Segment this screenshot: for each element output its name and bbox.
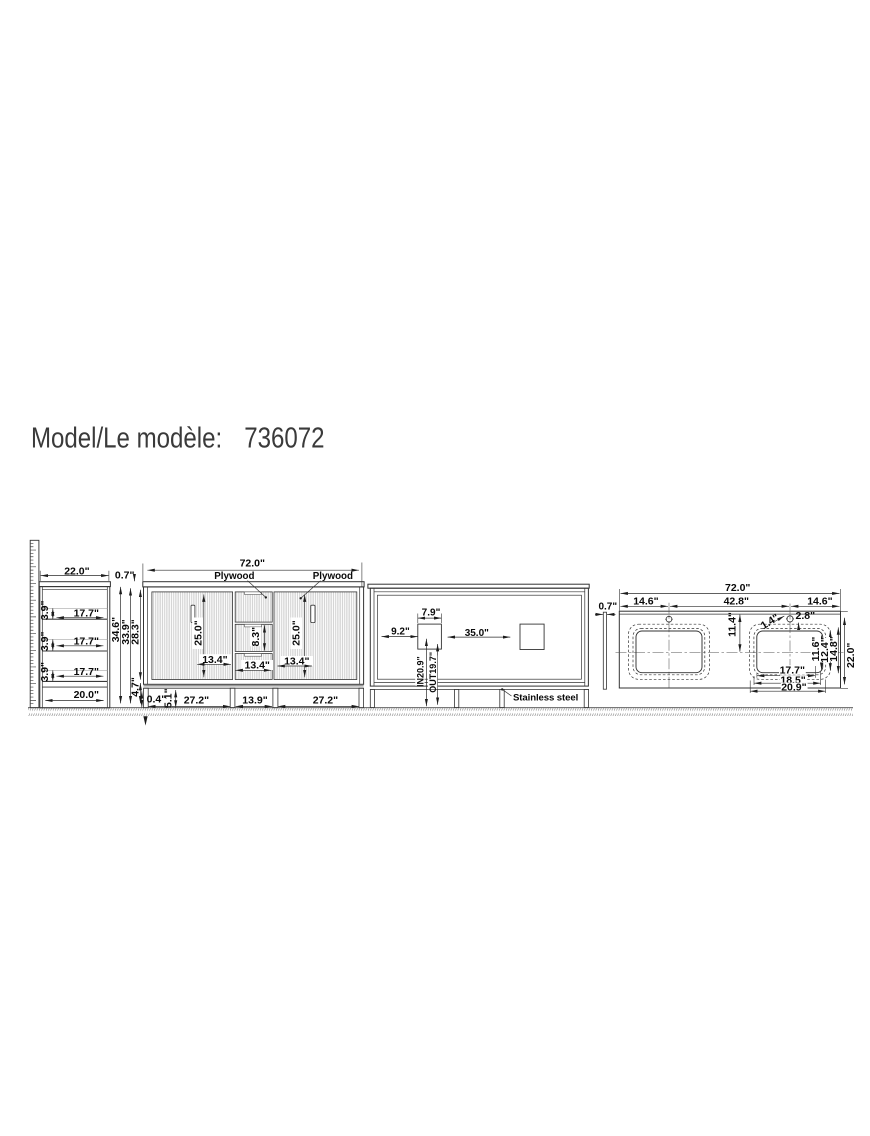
svg-text:8.3": 8.3"	[250, 627, 262, 647]
svg-text:Plywood: Plywood	[214, 571, 254, 582]
svg-text:13.9": 13.9"	[242, 695, 267, 707]
svg-text:25.0": 25.0"	[193, 620, 205, 645]
svg-text:Model/Le modèle:: Model/Le modèle:	[31, 421, 222, 454]
svg-text:9.2": 9.2"	[391, 627, 410, 638]
svg-text:20.9": 20.9"	[781, 682, 806, 694]
svg-text:2.8": 2.8"	[796, 610, 816, 622]
svg-text:14.6": 14.6"	[807, 596, 832, 608]
svg-text:3.9": 3.9"	[39, 600, 51, 620]
svg-text:0.7": 0.7"	[115, 570, 135, 582]
svg-text:27.2": 27.2"	[184, 695, 209, 707]
svg-text:22.0": 22.0"	[845, 643, 857, 668]
svg-text:7.9": 7.9"	[422, 608, 441, 619]
svg-text:28.3": 28.3"	[130, 619, 142, 644]
svg-text:27.2": 27.2"	[313, 695, 338, 707]
svg-text:25.0": 25.0"	[291, 620, 303, 645]
svg-text:IN20.9": IN20.9"	[416, 656, 426, 687]
svg-text:5.1": 5.1"	[163, 688, 175, 708]
svg-text:3.9": 3.9"	[39, 662, 51, 682]
svg-text:3.9": 3.9"	[39, 631, 51, 651]
svg-text:22.0": 22.0"	[64, 565, 89, 577]
svg-text:13.4": 13.4"	[244, 660, 269, 672]
svg-text:736072: 736072	[244, 421, 324, 454]
svg-text:4.7": 4.7"	[130, 677, 142, 697]
svg-text:72.0": 72.0"	[240, 558, 265, 570]
svg-text:Plywood: Plywood	[313, 571, 353, 582]
svg-text:0.7": 0.7"	[598, 602, 617, 613]
svg-text:20.0": 20.0"	[74, 689, 99, 701]
svg-text:14.8": 14.8"	[828, 636, 840, 661]
svg-text:14.6": 14.6"	[633, 596, 658, 608]
svg-text:72.0": 72.0"	[725, 582, 750, 594]
svg-text:Stainless steel: Stainless steel	[513, 693, 578, 704]
svg-text:11.4": 11.4"	[727, 612, 739, 637]
svg-text:OUT19.7": OUT19.7"	[428, 652, 438, 693]
svg-text:42.8": 42.8"	[724, 596, 749, 608]
